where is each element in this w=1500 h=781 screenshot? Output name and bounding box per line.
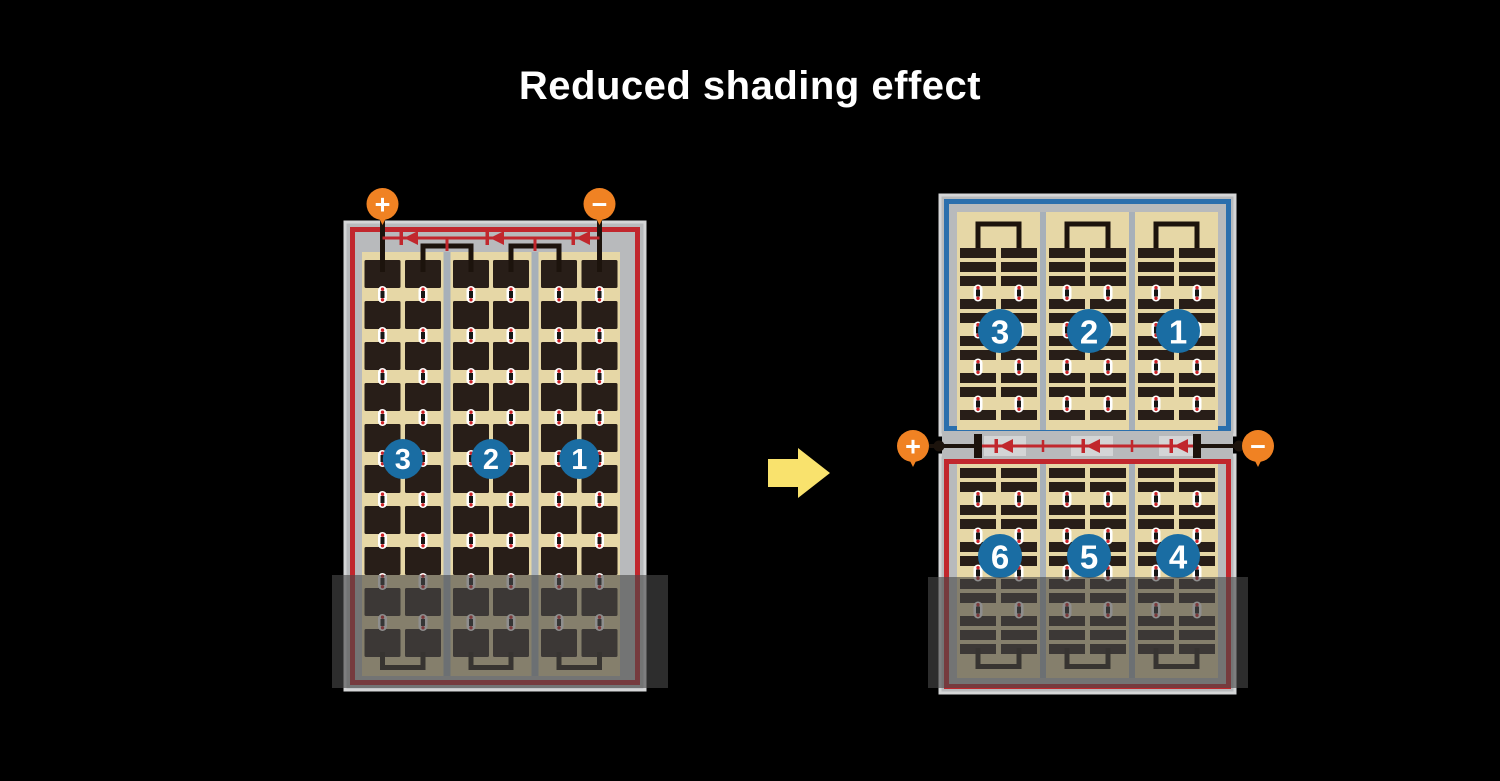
cell-connector-dot	[1106, 492, 1109, 495]
cell-connector-dot	[1106, 371, 1109, 374]
cell-connector-bar	[557, 496, 561, 503]
cell-connector-dot	[1106, 397, 1109, 400]
solar-cell	[405, 301, 441, 329]
cell-connector-dot	[1065, 529, 1068, 532]
cell-connector-dot	[1154, 371, 1157, 374]
solar-cell-half	[1090, 248, 1126, 258]
cell-connector-dot	[557, 339, 560, 342]
solar-cell	[493, 547, 529, 575]
cell-connector-dot	[557, 288, 560, 291]
cell-connector-dot	[1195, 492, 1198, 495]
bypass-diode-bar	[1082, 439, 1086, 453]
cell-connector-dot	[421, 503, 424, 506]
badge-label: 6	[991, 539, 1009, 576]
cell-connector-dot	[598, 421, 601, 424]
cell-connector-dot	[1195, 540, 1198, 543]
cell-connector-dot	[381, 503, 384, 506]
solar-cell	[541, 383, 577, 411]
cell-connector-bar	[381, 496, 385, 503]
cell-connector-dot	[469, 544, 472, 547]
cell-connector-dot	[1154, 297, 1157, 300]
solar-cell-half	[1090, 262, 1126, 272]
cell-connector-dot	[1154, 286, 1157, 289]
cell-connector-dot	[469, 339, 472, 342]
solar-cell-half	[960, 248, 996, 258]
cell-connector-dot	[381, 298, 384, 301]
right-top-string-badge-1: 1	[1156, 309, 1200, 353]
cell-connector-bar	[469, 373, 473, 380]
cell-connector-dot	[469, 503, 472, 506]
cell-connector-bar	[598, 414, 602, 421]
solar-cell-half	[1179, 248, 1215, 258]
badge-label: 2	[1080, 314, 1098, 351]
solar-cell-half	[1001, 248, 1037, 258]
cell-connector-bar	[421, 291, 425, 298]
cell-connector-dot	[1106, 408, 1109, 411]
cell-connector-bar	[598, 332, 602, 339]
cell-connector-dot	[509, 493, 512, 496]
cell-connector-dot	[976, 492, 979, 495]
cell-connector-bar	[381, 373, 385, 380]
cell-connector-bar	[1065, 364, 1069, 371]
cell-connector-bar	[509, 537, 513, 544]
cell-connector-bar	[509, 291, 513, 298]
solar-cell	[493, 506, 529, 534]
cell-connector-dot	[1017, 371, 1020, 374]
cell-connector-dot	[1106, 360, 1109, 363]
shading-overlay-left	[332, 575, 668, 688]
cell-connector-dot	[1065, 397, 1068, 400]
solar-cell	[582, 342, 618, 370]
cell-connector-dot	[509, 339, 512, 342]
solar-cell-half	[1049, 468, 1085, 478]
cell-connector-dot	[598, 534, 601, 537]
cell-connector-dot	[1017, 529, 1020, 532]
cell-connector-dot	[1106, 529, 1109, 532]
cell-connector-bar	[381, 291, 385, 298]
cell-connector-dot	[557, 503, 560, 506]
cell-connector-dot	[598, 298, 601, 301]
cell-connector-dot	[976, 360, 979, 363]
cell-connector-bar	[1154, 364, 1158, 371]
cell-connector-bar	[421, 496, 425, 503]
solar-cell-half	[1001, 262, 1037, 272]
cell-connector-bar	[469, 496, 473, 503]
cell-connector-bar	[1195, 570, 1199, 577]
cell-connector-dot	[1154, 397, 1157, 400]
cell-connector-dot	[1154, 540, 1157, 543]
cell-connector-dot	[469, 380, 472, 383]
cell-connector-dot	[469, 298, 472, 301]
cell-connector-dot	[1154, 492, 1157, 495]
diagram-canvas: 3 2 1 3 2 1 6 5	[0, 0, 1500, 781]
plus-symbol: +	[375, 190, 391, 220]
cell-connector-dot	[976, 566, 979, 569]
cell-connector-dot	[1017, 297, 1020, 300]
cell-connector-bar	[509, 332, 513, 339]
lead-node	[934, 441, 945, 452]
minus-symbol: −	[1250, 432, 1266, 462]
left-string-badge-1: 1	[559, 439, 599, 479]
cell-connector-dot	[1017, 492, 1020, 495]
cell-connector-dot	[509, 421, 512, 424]
cell-connector-dot	[557, 544, 560, 547]
cell-connector-dot	[1106, 540, 1109, 543]
cell-connector-dot	[509, 411, 512, 414]
cell-connector-bar	[469, 537, 473, 544]
cell-connector-bar	[1017, 290, 1021, 297]
left-plus-terminal: +	[367, 188, 399, 225]
cell-connector-bar	[976, 364, 980, 371]
cell-connector-dot	[1017, 397, 1020, 400]
cell-connector-dot	[557, 380, 560, 383]
solar-cell	[541, 342, 577, 370]
cell-connector-dot	[1195, 397, 1198, 400]
badge-label: 1	[571, 444, 587, 476]
cell-connector-dot	[509, 503, 512, 506]
cell-connector-dot	[976, 503, 979, 506]
bypass-diode-bar	[400, 231, 404, 245]
cell-connector-dot	[557, 534, 560, 537]
solar-cell	[405, 547, 441, 575]
cell-connector-dot	[421, 493, 424, 496]
solar-cell	[582, 506, 618, 534]
badge-label: 2	[483, 444, 499, 476]
solar-cell	[453, 383, 489, 411]
right-top-string-badge-2: 2	[1067, 309, 1111, 353]
cell-connector-dot	[1017, 408, 1020, 411]
cell-connector-dot	[1065, 492, 1068, 495]
bypass-diode-bar	[1170, 439, 1174, 453]
cell-connector-bar	[1017, 401, 1021, 408]
cell-connector-dot	[421, 534, 424, 537]
cell-connector-dot	[509, 370, 512, 373]
cell-connector-bar	[1195, 533, 1199, 540]
cell-connector-dot	[421, 370, 424, 373]
cell-connector-dot	[1195, 297, 1198, 300]
cell-connector-dot	[976, 397, 979, 400]
cell-connector-bar	[1065, 496, 1069, 503]
badge-label: 5	[1080, 539, 1098, 576]
badge-label: 4	[1169, 539, 1188, 576]
cell-connector-dot	[1106, 286, 1109, 289]
solar-cell-half	[1001, 468, 1037, 478]
cell-connector-bar	[509, 414, 513, 421]
cell-connector-dot	[381, 534, 384, 537]
right-bottom-string-badge-5: 5	[1067, 534, 1111, 578]
solar-cell	[365, 506, 401, 534]
bypass-diode-bar	[995, 439, 999, 453]
cell-connector-dot	[1154, 360, 1157, 363]
cell-connector-bar	[421, 373, 425, 380]
cell-connector-bar	[381, 332, 385, 339]
string-divider	[1129, 212, 1135, 430]
cell-connector-bar	[421, 414, 425, 421]
solar-cell	[405, 506, 441, 534]
cell-connector-bar	[557, 291, 561, 298]
cell-connector-dot	[421, 380, 424, 383]
solar-cell	[493, 301, 529, 329]
diagram-stage: Reduced shading effect 3 2 1 3 2	[0, 0, 1500, 781]
cell-connector-dot	[469, 288, 472, 291]
solar-cell-half	[1179, 468, 1215, 478]
cell-connector-dot	[381, 411, 384, 414]
cell-connector-dot	[1065, 503, 1068, 506]
cell-connector-dot	[598, 339, 601, 342]
solar-cell	[541, 506, 577, 534]
cell-connector-dot	[1154, 503, 1157, 506]
cell-connector-bar	[421, 332, 425, 339]
cell-connector-dot	[976, 371, 979, 374]
cell-connector-dot	[509, 298, 512, 301]
cell-connector-dot	[1017, 503, 1020, 506]
cell-connector-dot	[976, 297, 979, 300]
cell-connector-dot	[1065, 540, 1068, 543]
cell-connector-bar	[1195, 290, 1199, 297]
cell-connector-bar	[1065, 401, 1069, 408]
cell-connector-dot	[1106, 503, 1109, 506]
cell-connector-dot	[557, 493, 560, 496]
cell-connector-dot	[509, 288, 512, 291]
cell-connector-bar	[976, 290, 980, 297]
cell-connector-bar	[1106, 401, 1110, 408]
cell-connector-dot	[421, 339, 424, 342]
solar-cell-half	[1138, 262, 1174, 272]
cell-connector-bar	[1106, 533, 1110, 540]
transform-arrow-icon	[768, 448, 830, 498]
cell-connector-dot	[598, 493, 601, 496]
cell-connector-dot	[1154, 408, 1157, 411]
cell-connector-dot	[557, 298, 560, 301]
cell-connector-bar	[1154, 290, 1158, 297]
cell-connector-dot	[1195, 371, 1198, 374]
cell-connector-bar	[469, 291, 473, 298]
solar-cell	[405, 383, 441, 411]
right-plus-terminal: +	[897, 430, 929, 467]
cell-connector-bar	[1106, 290, 1110, 297]
cell-connector-dot	[598, 411, 601, 414]
solar-cell-half	[960, 468, 996, 478]
solar-cell	[365, 301, 401, 329]
cell-connector-dot	[421, 544, 424, 547]
cell-connector-dot	[1195, 529, 1198, 532]
solar-cell	[541, 547, 577, 575]
solar-cell-half	[1090, 468, 1126, 478]
cell-connector-dot	[381, 370, 384, 373]
cell-connector-dot	[1017, 540, 1020, 543]
string-divider	[1040, 212, 1046, 430]
cell-connector-dot	[557, 421, 560, 424]
cell-connector-bar	[1195, 364, 1199, 371]
solar-cell	[493, 383, 529, 411]
cell-connector-dot	[421, 421, 424, 424]
cell-connector-dot	[421, 298, 424, 301]
cell-connector-dot	[509, 329, 512, 332]
solar-cell	[365, 342, 401, 370]
cell-connector-bar	[509, 496, 513, 503]
cell-connector-dot	[598, 544, 601, 547]
cell-connector-dot	[381, 493, 384, 496]
cell-connector-dot	[557, 370, 560, 373]
cell-connector-dot	[1065, 408, 1068, 411]
cell-connector-dot	[1195, 503, 1198, 506]
badge-label: 3	[991, 314, 1009, 351]
right-module-junction-structure	[929, 433, 1246, 458]
cell-connector-bar	[598, 373, 602, 380]
left-string-badge-3: 3	[383, 439, 423, 479]
cell-connector-dot	[598, 503, 601, 506]
cell-connector-bar	[381, 537, 385, 544]
solar-cell	[365, 383, 401, 411]
cell-connector-dot	[1065, 286, 1068, 289]
cell-connector-dot	[381, 380, 384, 383]
cell-connector-dot	[381, 329, 384, 332]
cell-connector-bar	[598, 496, 602, 503]
cell-connector-dot	[598, 288, 601, 291]
series-link-bar	[974, 434, 982, 458]
solar-cell	[453, 547, 489, 575]
cell-connector-dot	[381, 339, 384, 342]
right-bottom-string-badge-4: 4	[1156, 534, 1200, 578]
left-string-badge-2: 2	[471, 439, 511, 479]
cell-connector-dot	[1195, 286, 1198, 289]
cell-connector-bar	[1106, 496, 1110, 503]
cell-connector-dot	[557, 411, 560, 414]
cell-connector-dot	[469, 534, 472, 537]
cell-connector-dot	[421, 411, 424, 414]
cell-connector-bar	[1017, 364, 1021, 371]
cell-connector-dot	[1065, 360, 1068, 363]
cell-connector-dot	[598, 329, 601, 332]
cell-connector-dot	[469, 411, 472, 414]
cell-connector-dot	[381, 288, 384, 291]
cell-connector-bar	[1195, 496, 1199, 503]
cell-connector-dot	[381, 544, 384, 547]
cell-connector-dot	[509, 544, 512, 547]
solar-cell-half	[960, 262, 996, 272]
cell-connector-dot	[598, 380, 601, 383]
cell-connector-bar	[557, 414, 561, 421]
solar-cell-half	[1138, 248, 1174, 258]
solar-cell	[541, 301, 577, 329]
cell-connector-dot	[509, 380, 512, 383]
cell-connector-bar	[381, 414, 385, 421]
cell-connector-bar	[976, 496, 980, 503]
solar-cell-half	[1179, 262, 1215, 272]
cell-connector-dot	[598, 370, 601, 373]
solar-cell	[582, 547, 618, 575]
cell-connector-dot	[469, 329, 472, 332]
cell-connector-dot	[509, 534, 512, 537]
cell-connector-bar	[1065, 570, 1069, 577]
solar-cell-half	[1138, 468, 1174, 478]
cell-connector-dot	[1195, 360, 1198, 363]
solar-cell	[493, 342, 529, 370]
cell-connector-dot	[1154, 566, 1157, 569]
plus-symbol: +	[905, 432, 921, 462]
cell-connector-bar	[1017, 533, 1021, 540]
minus-symbol: −	[592, 190, 608, 220]
cell-connector-dot	[976, 540, 979, 543]
cell-connector-bar	[1106, 570, 1110, 577]
solar-cell	[405, 342, 441, 370]
cell-connector-bar	[469, 332, 473, 339]
cell-connector-bar	[509, 373, 513, 380]
cell-connector-dot	[1154, 529, 1157, 532]
cell-connector-bar	[557, 373, 561, 380]
cell-connector-bar	[598, 537, 602, 544]
left-minus-terminal: −	[584, 188, 616, 225]
cell-connector-dot	[421, 288, 424, 291]
cell-connector-dot	[1017, 286, 1020, 289]
series-link-bar	[1193, 434, 1201, 458]
bypass-diode-bar	[486, 231, 490, 245]
cell-connector-bar	[1106, 364, 1110, 371]
cell-connector-bar	[1154, 496, 1158, 503]
solar-cell	[453, 301, 489, 329]
cell-connector-dot	[1065, 297, 1068, 300]
cell-connector-dot	[469, 370, 472, 373]
cell-connector-dot	[1065, 371, 1068, 374]
cell-connector-bar	[421, 537, 425, 544]
right-minus-terminal: −	[1242, 430, 1274, 467]
cell-connector-bar	[976, 533, 980, 540]
cell-connector-bar	[557, 537, 561, 544]
right-bottom-string-badge-6: 6	[978, 534, 1022, 578]
solar-cell	[453, 342, 489, 370]
solar-cell	[365, 547, 401, 575]
solar-cell	[582, 301, 618, 329]
solar-cell	[582, 383, 618, 411]
cell-connector-dot	[976, 529, 979, 532]
solar-cell-half	[1049, 248, 1085, 258]
cell-connector-dot	[976, 286, 979, 289]
cell-connector-bar	[1017, 496, 1021, 503]
cell-connector-bar	[1154, 570, 1158, 577]
cell-connector-bar	[598, 291, 602, 298]
cell-connector-dot	[557, 329, 560, 332]
badge-label: 1	[1169, 314, 1187, 351]
cell-connector-bar	[1154, 533, 1158, 540]
cell-connector-dot	[1017, 360, 1020, 363]
cell-connector-dot	[976, 408, 979, 411]
solar-cell-half	[1049, 262, 1085, 272]
solar-cell	[453, 506, 489, 534]
cell-connector-dot	[1065, 566, 1068, 569]
cell-connector-dot	[469, 493, 472, 496]
cell-connector-dot	[1106, 297, 1109, 300]
cell-connector-bar	[1065, 533, 1069, 540]
cell-connector-bar	[1065, 290, 1069, 297]
badge-label: 3	[395, 444, 411, 476]
cell-connector-bar	[1154, 401, 1158, 408]
bypass-diode-bar	[572, 231, 576, 245]
cell-connector-dot	[469, 421, 472, 424]
cell-connector-bar	[976, 401, 980, 408]
cell-connector-bar	[1195, 401, 1199, 408]
cell-connector-bar	[557, 332, 561, 339]
right-top-string-badge-3: 3	[978, 309, 1022, 353]
cell-connector-bar	[1017, 570, 1021, 577]
cell-connector-dot	[421, 329, 424, 332]
cell-connector-bar	[469, 414, 473, 421]
cell-connector-dot	[381, 421, 384, 424]
cell-connector-bar	[976, 570, 980, 577]
cell-connector-dot	[1195, 408, 1198, 411]
shading-overlay-right	[928, 577, 1248, 688]
